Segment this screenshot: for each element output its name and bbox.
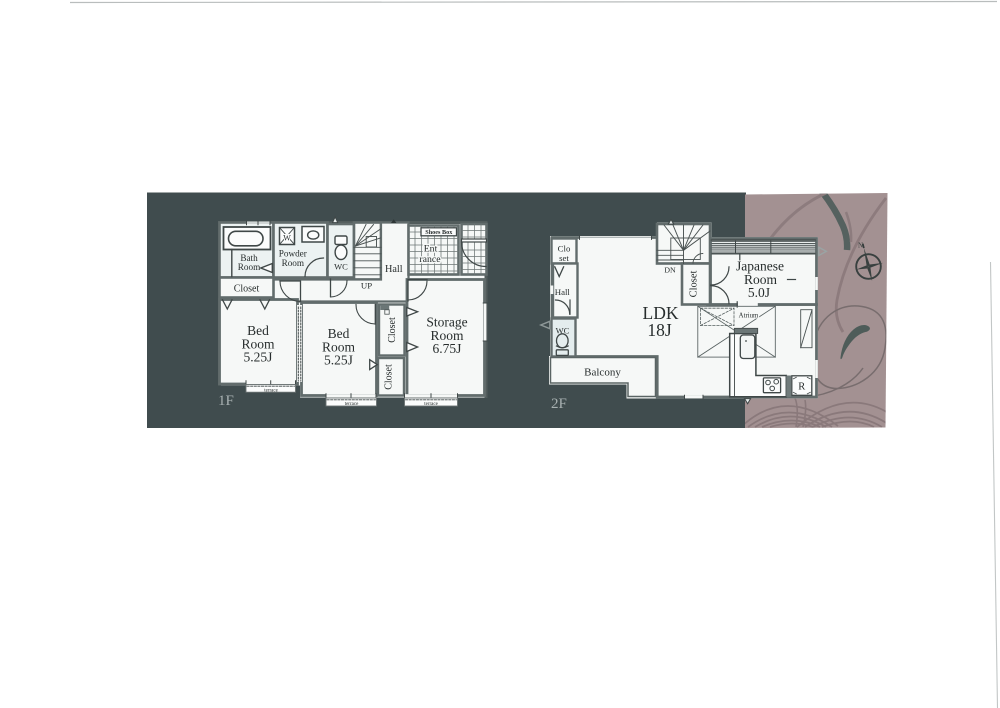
svg-text:rance: rance <box>419 254 441 265</box>
svg-text:2F: 2F <box>551 396 567 412</box>
svg-text:WC: WC <box>334 262 348 272</box>
svg-text:set: set <box>559 253 569 263</box>
svg-text:Closet: Closet <box>387 317 398 343</box>
svg-text:5.25J: 5.25J <box>324 353 353 368</box>
svg-text:Room: Room <box>282 258 304 268</box>
svg-text:W: W <box>283 234 291 243</box>
svg-text:5.0J: 5.0J <box>748 285 770 300</box>
svg-text:5.25J: 5.25J <box>244 350 273 365</box>
svg-text:Closet: Closet <box>384 364 395 390</box>
svg-text:Closet: Closet <box>234 284 260 295</box>
svg-text:6.75J: 6.75J <box>433 341 462 356</box>
svg-text:Room: Room <box>238 262 260 272</box>
svg-text:Clo: Clo <box>558 244 571 254</box>
svg-text:DN: DN <box>664 266 676 275</box>
svg-text:terrace: terrace <box>345 402 359 407</box>
svg-text:Hall: Hall <box>385 264 403 275</box>
svg-text:Balcony: Balcony <box>584 367 621 379</box>
svg-text:Hall: Hall <box>555 287 571 297</box>
svg-text:18J: 18J <box>647 320 672 340</box>
svg-text:R: R <box>798 382 805 393</box>
svg-text:1F: 1F <box>218 393 234 409</box>
svg-text:Atrium: Atrium <box>739 313 759 320</box>
svg-text:Closet: Closet <box>689 271 700 298</box>
svg-text:N: N <box>858 242 863 250</box>
svg-text:terrace: terrace <box>264 388 278 393</box>
svg-text:terrace: terrace <box>424 402 438 407</box>
svg-text:UP: UP <box>361 280 372 290</box>
svg-text:Shoes Box: Shoes Box <box>425 229 453 236</box>
